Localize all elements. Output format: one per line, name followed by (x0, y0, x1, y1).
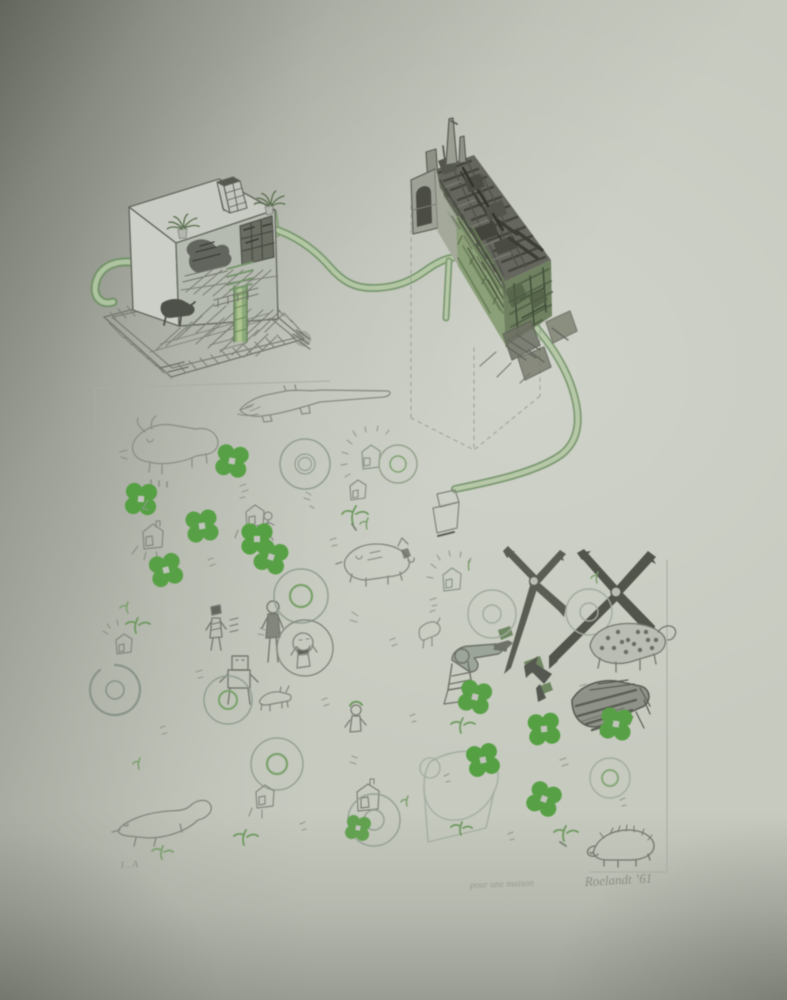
svg-text:1 . A: 1 . A (120, 859, 140, 871)
svg-text:pour une maison: pour une maison (469, 879, 534, 891)
svg-text:Roelandt ’61: Roelandt ’61 (583, 870, 652, 889)
